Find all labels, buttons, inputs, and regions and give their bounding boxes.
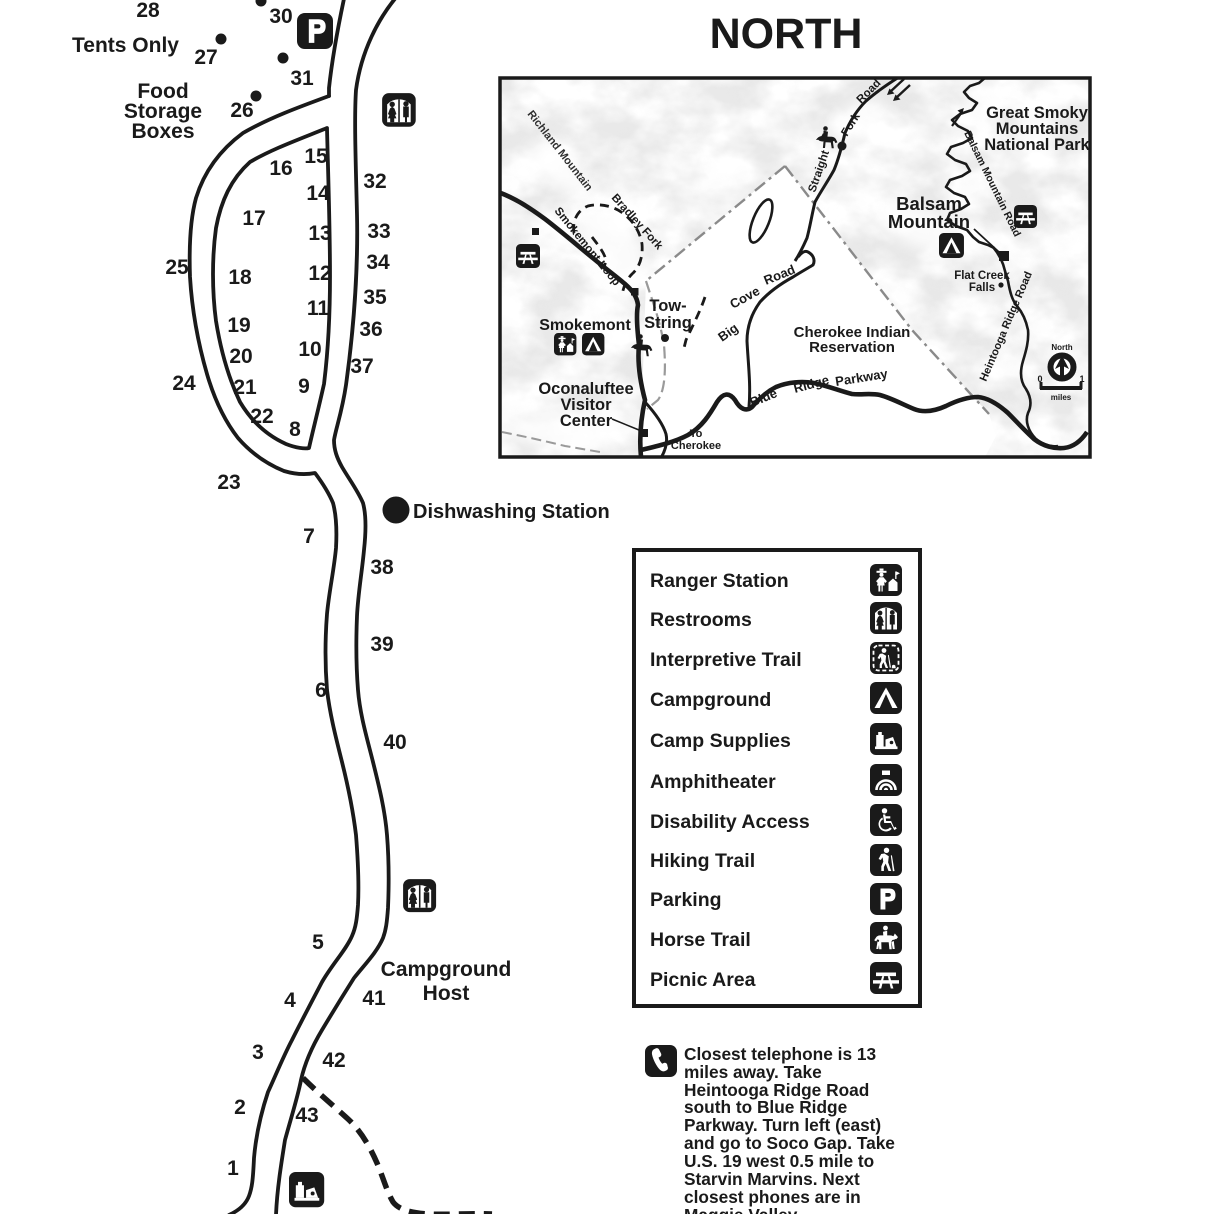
svg-text:Hiking Trail: Hiking Trail: [650, 850, 755, 872]
svg-text:25: 25: [165, 256, 189, 279]
svg-text:Campground: Campground: [650, 689, 771, 711]
svg-text:39: 39: [370, 633, 393, 656]
svg-text:Tents Only: Tents Only: [72, 34, 179, 57]
svg-text:35: 35: [363, 286, 387, 309]
svg-text:8: 8: [289, 418, 301, 441]
svg-text:33: 33: [367, 220, 390, 243]
svg-text:6: 6: [315, 679, 327, 702]
svg-text:Horse Trail: Horse Trail: [650, 929, 751, 951]
svg-text:Reservation: Reservation: [809, 339, 895, 356]
svg-text:42: 42: [322, 1049, 345, 1072]
svg-text:String: String: [644, 314, 692, 332]
svg-text:38: 38: [370, 556, 394, 579]
svg-text:Ranger Station: Ranger Station: [650, 570, 789, 592]
svg-text:30: 30: [269, 5, 292, 28]
svg-text:Disability Access: Disability Access: [650, 811, 810, 833]
svg-text:Mountain: Mountain: [888, 211, 970, 232]
svg-text:19: 19: [227, 314, 250, 337]
svg-text:21: 21: [233, 376, 257, 399]
svg-text:1: 1: [227, 1157, 239, 1180]
svg-text:20: 20: [229, 345, 252, 368]
svg-text:3: 3: [252, 1041, 264, 1064]
svg-text:4: 4: [284, 989, 296, 1012]
svg-text:27: 27: [194, 46, 217, 69]
svg-text:Host: Host: [423, 982, 470, 1005]
svg-text:U.S. 19 west 0.5 mile to: U.S. 19 west 0.5 mile to: [684, 1151, 874, 1171]
svg-text:Camp Supplies: Camp Supplies: [650, 730, 791, 752]
svg-text:Starvin Marvins. Next: Starvin Marvins. Next: [684, 1169, 860, 1189]
svg-text:31: 31: [290, 67, 314, 90]
svg-text:34: 34: [366, 251, 390, 274]
svg-text:Maggie Valley.: Maggie Valley.: [684, 1205, 801, 1214]
svg-text:41: 41: [362, 987, 386, 1010]
svg-text:North: North: [1051, 343, 1072, 352]
svg-text:Cherokee: Cherokee: [671, 440, 721, 452]
svg-text:16: 16: [269, 157, 292, 180]
svg-text:Amphitheater: Amphitheater: [650, 771, 776, 793]
svg-text:40: 40: [383, 731, 406, 754]
svg-text:22: 22: [250, 405, 273, 428]
svg-text:37: 37: [350, 355, 373, 378]
svg-text:15: 15: [304, 145, 328, 168]
svg-text:Parking: Parking: [650, 889, 722, 911]
svg-text:2: 2: [234, 1096, 246, 1119]
svg-text:11: 11: [307, 297, 330, 320]
svg-text:10: 10: [298, 338, 321, 361]
svg-text:closest phones are in: closest phones are in: [684, 1187, 861, 1207]
svg-text:32: 32: [363, 170, 386, 193]
svg-text:Parkway. Turn left (east): Parkway. Turn left (east): [684, 1115, 881, 1135]
svg-text:Tow-: Tow-: [649, 297, 686, 315]
svg-text:17: 17: [242, 207, 265, 230]
svg-text:Boxes: Boxes: [131, 120, 194, 143]
svg-text:south to Blue Ridge: south to Blue Ridge: [684, 1097, 848, 1117]
svg-text:miles: miles: [1051, 393, 1072, 402]
svg-text:National Park: National Park: [984, 136, 1090, 154]
svg-text:Picnic Area: Picnic Area: [650, 969, 756, 991]
svg-text:26: 26: [230, 99, 253, 122]
svg-text:14: 14: [306, 182, 330, 205]
svg-text:Smokemont: Smokemont: [539, 317, 631, 334]
svg-text:12: 12: [308, 262, 331, 285]
svg-text:28: 28: [136, 0, 160, 22]
svg-text:36: 36: [359, 318, 382, 341]
svg-text:18: 18: [228, 266, 252, 289]
svg-text:Restrooms: Restrooms: [650, 609, 752, 631]
svg-text:Campground: Campground: [381, 958, 512, 981]
svg-text:Closest telephone is 13: Closest telephone is 13: [684, 1044, 876, 1064]
svg-text:miles away. Take: miles away. Take: [684, 1062, 822, 1082]
svg-text:23: 23: [217, 471, 240, 494]
svg-text:Interpretive Trail: Interpretive Trail: [650, 649, 802, 671]
svg-text:5: 5: [312, 931, 324, 954]
svg-text:Dishwashing Station: Dishwashing Station: [413, 501, 610, 523]
svg-text:NORTH: NORTH: [710, 10, 863, 58]
svg-text:24: 24: [172, 372, 196, 395]
svg-text:and go to Soco Gap. Take: and go to Soco Gap. Take: [684, 1133, 895, 1153]
svg-text:9: 9: [298, 375, 310, 398]
svg-text:13: 13: [308, 222, 331, 245]
svg-text:Flat Creek: Flat Creek: [954, 270, 1010, 282]
svg-text:Falls: Falls: [969, 282, 995, 294]
svg-text:7: 7: [303, 525, 315, 548]
svg-text:Center: Center: [560, 412, 613, 430]
svg-text:43: 43: [295, 1104, 318, 1127]
svg-text:To: To: [690, 428, 703, 440]
